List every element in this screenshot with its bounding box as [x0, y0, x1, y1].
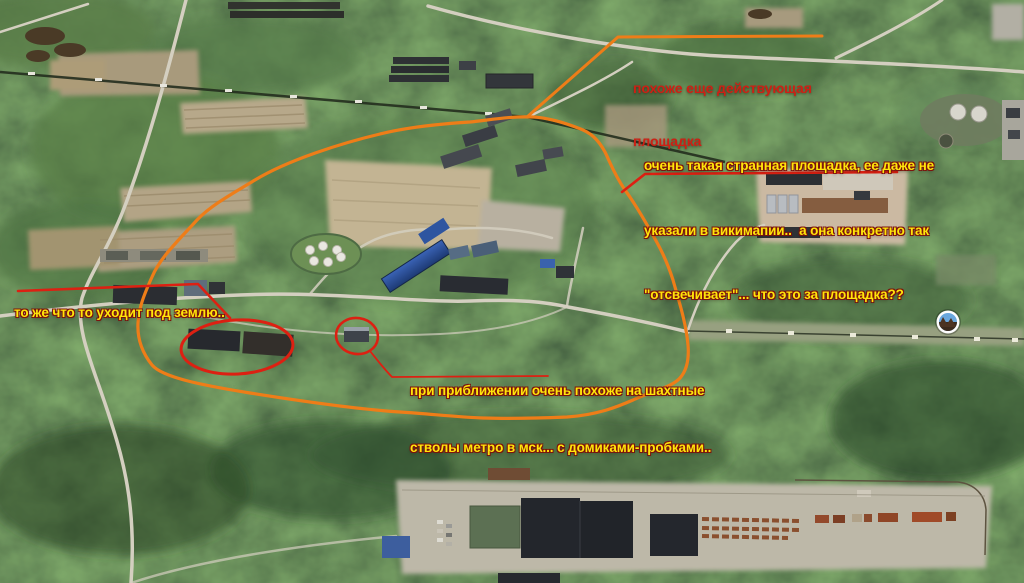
annotation-line: указали в викимапии.. а она конкретно та… [644, 220, 934, 242]
annotation-line: стволы метро в мск... с домиками-пробкам… [410, 438, 711, 457]
annotation-note-left: то же что то уходит под землю.. [14, 270, 225, 338]
annotation-line: очень такая странная площадка, ее даже н… [644, 155, 934, 177]
annotation-note-right: очень такая странная площадка, ее даже н… [644, 112, 934, 327]
annotation-line: при приближении очень похоже на шахтные [410, 381, 711, 400]
photo-marker-icon[interactable] [935, 309, 961, 335]
annotation-line: то же что то уходит под землю.. [14, 304, 225, 321]
annotation-line: "отсвечивает"... что это за площадка?? [644, 284, 934, 306]
annotation-line: похоже еще действующая [633, 80, 812, 98]
annotation-note-center: при приближении очень похоже на шахтные … [410, 343, 711, 476]
annotated-satellite-image: похоже еще действующая площадка очень та… [0, 0, 1024, 583]
